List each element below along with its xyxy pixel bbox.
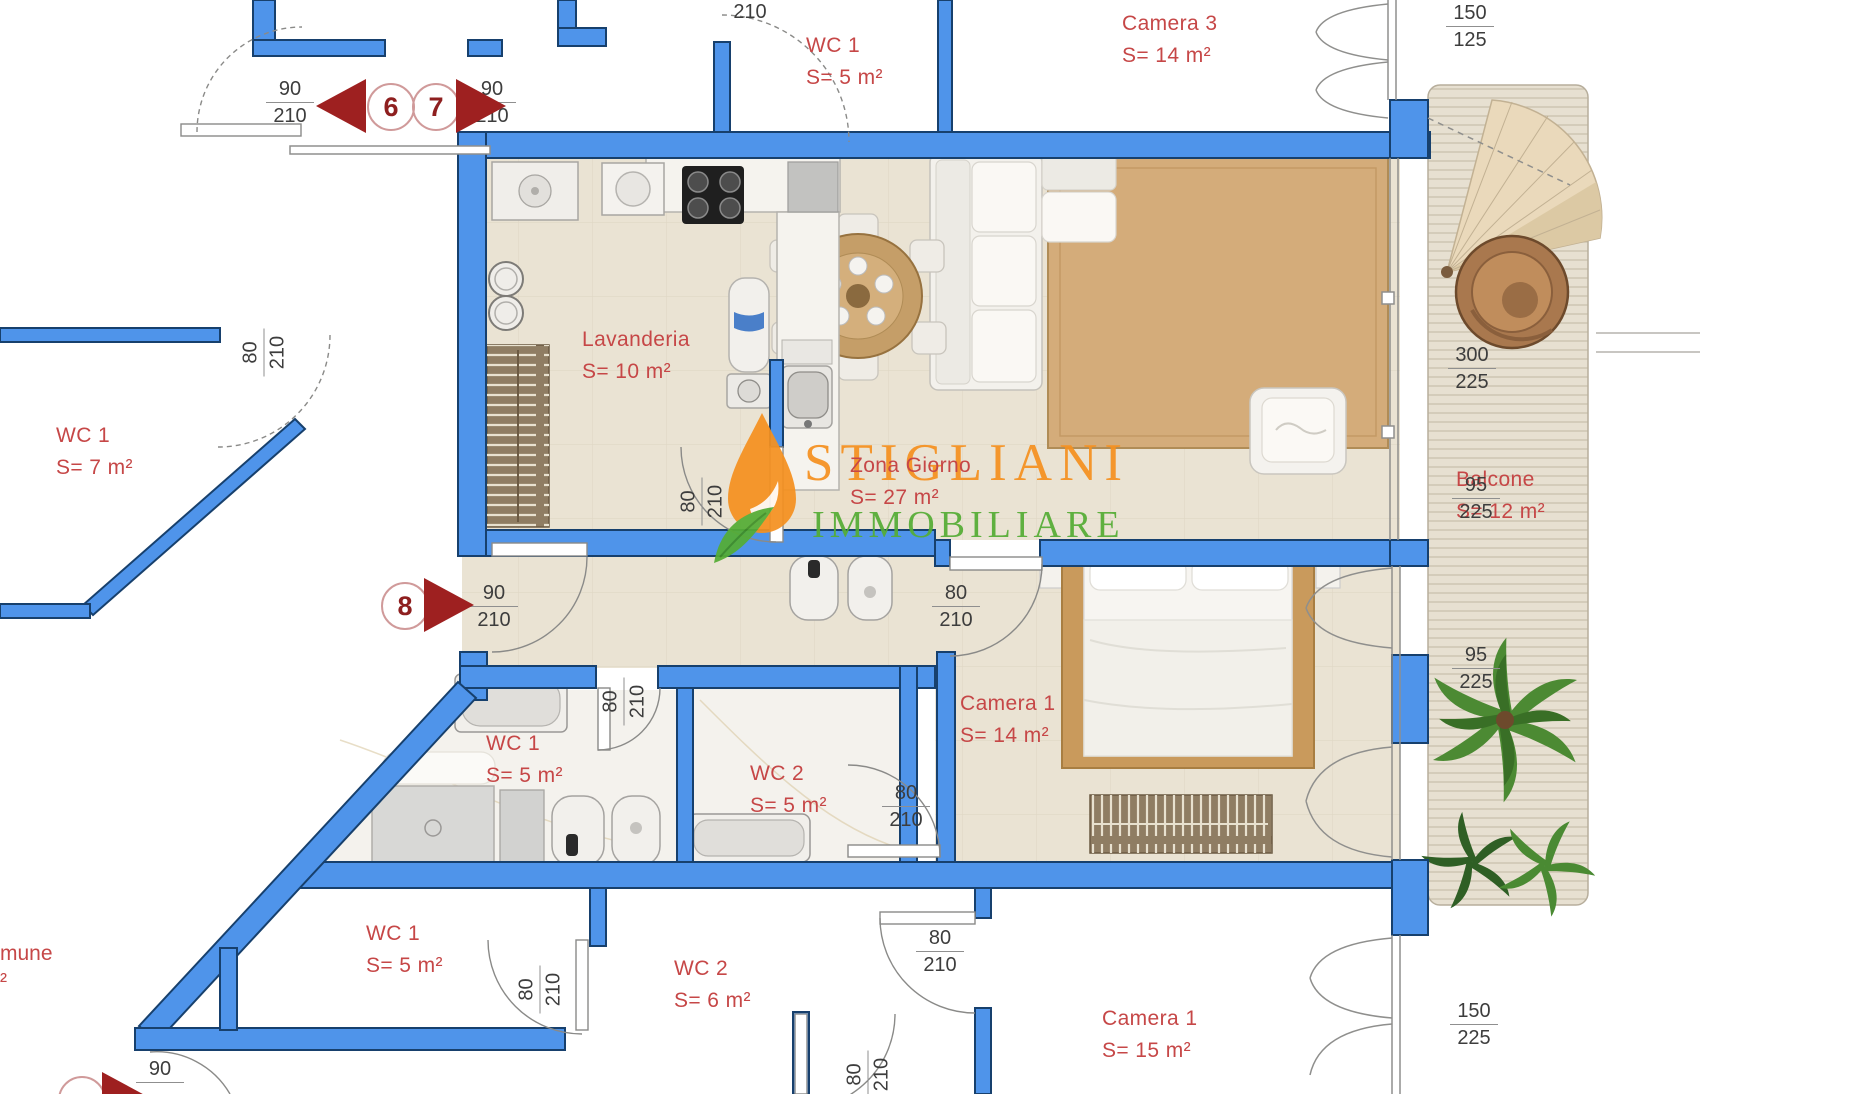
room-label-wc2-bottom: WC 2S= 6 m² [674,953,751,1016]
room-label-wc1-bottom: WC 1S= 5 m² [366,918,443,981]
dim-80-210-bottom-edge: 80210 [844,1047,893,1094]
dim-90-210-door8: 90210 [466,582,522,631]
room-label-wc2-mid: WC 2S= 5 m² [750,758,827,821]
dim-80-210-wc1mid: 80210 [600,674,649,730]
bed [1040,556,1340,768]
door-arrow-bottom-triangle [102,1072,152,1094]
dim-80-210-camera1bottom: 80210 [912,927,968,976]
room-label-camera3: Camera 3S= 14 m² [1122,8,1217,71]
room-label-wc1-top: WC 1S= 5 m² [806,30,883,93]
dim-90-210-door6: 90210 [262,78,318,127]
door-arrow-8-number: 8 [381,582,429,630]
dim-80-210-lavanderia: 80210 [678,474,727,530]
dim-80-210-wc2mid: 80210 [878,782,934,831]
dim-80-210-camera1: 80210 [928,582,984,631]
door-arrow-7-triangle [456,79,506,133]
dim-300-225: 300225 [1444,344,1500,393]
room-label-comune-fragment2: ² [0,970,7,994]
room-label-camera1-mid: Camera 1S= 14 m² [960,688,1055,751]
dim-150-225: 150225 [1446,1000,1502,1049]
bedroom-radiator [1090,795,1272,853]
floorplan-page: STIGLIANI IMMOBILIARE WC 1S= 5 m² Camera… [0,0,1875,1094]
door-arrow-8-triangle [424,578,474,632]
armchair [1250,388,1346,474]
door-arrow-7-number: 7 [412,83,460,131]
dim-95-225-upper: 95225 [1448,474,1504,523]
room-label-zona-giorno: Zona GiornoS= 27 m² [850,450,971,513]
dim-210-top: 210 [722,0,778,23]
dim-95-225-lower: 95225 [1448,644,1504,693]
dim-80-210-wc1bottom: 80210 [516,962,565,1018]
dim-80-210-left: 80210 [240,325,289,381]
room-label-lavanderia: LavanderiaS= 10 m² [582,324,690,387]
room-label-wc1-left: WC 1S= 7 m² [56,420,133,483]
door-arrow-6-triangle [316,79,366,133]
dim-150-125: 150125 [1442,2,1498,51]
wicker-chair [1456,236,1568,348]
room-label-camera1-bottom: Camera 1S= 15 m² [1102,1003,1197,1066]
room-label-comune-fragment: mune [0,942,53,966]
room-label-wc1-mid: WC 1S= 5 m² [486,728,563,791]
door-arrow-6-number: 6 [367,83,415,131]
